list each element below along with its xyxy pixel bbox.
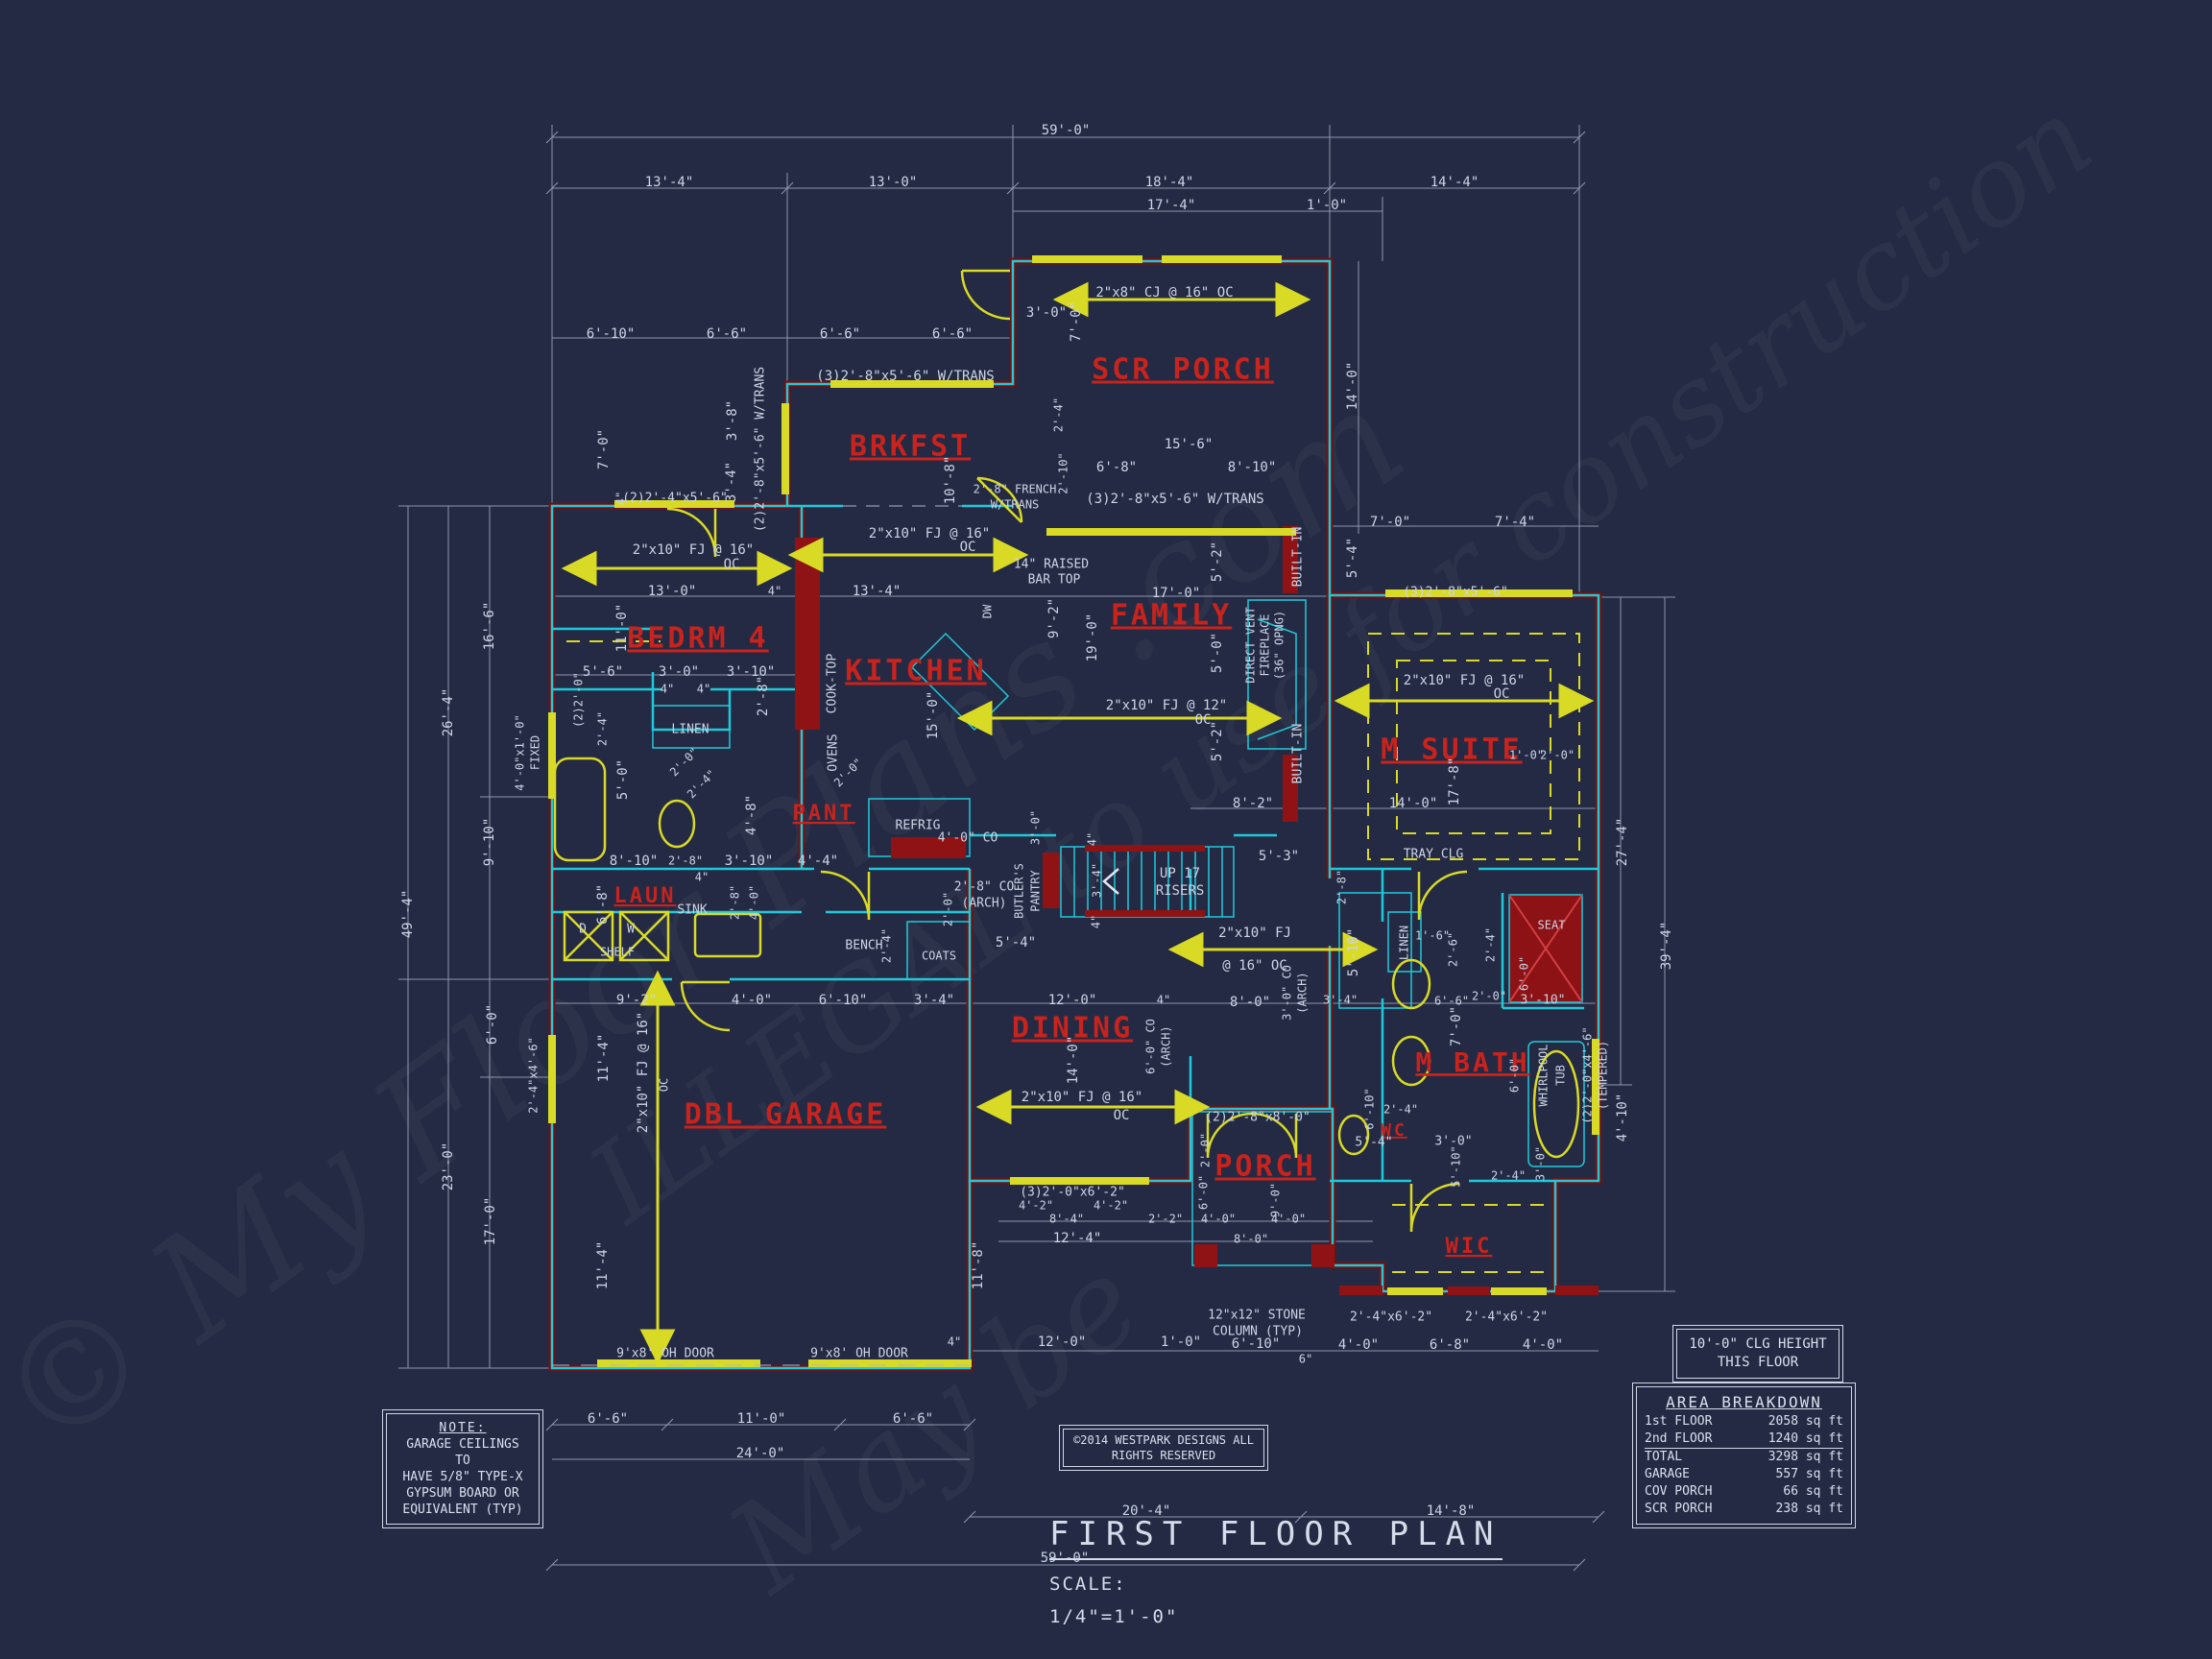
copyright-line: RIGHTS RESERVED xyxy=(1070,1448,1258,1463)
plan-label: SINK xyxy=(677,903,707,918)
plan-label: 17'-8" xyxy=(1447,757,1462,806)
plan-label: 11'-4" xyxy=(595,1241,611,1290)
plan-label: 2'-4" xyxy=(1052,397,1066,432)
area-table-row: TOTAL3298 sq ft xyxy=(1645,1449,1843,1466)
plan-label: 3'-4" xyxy=(914,993,954,1008)
plan-label: 14'-0" xyxy=(1389,796,1438,811)
plan-label: (ARCH) xyxy=(962,897,1007,911)
plan-label: 49'-4" xyxy=(400,890,416,939)
plan-label: 13'-0" xyxy=(648,584,697,599)
room-label: LAUN xyxy=(614,884,677,908)
plan-label: 6'-0" xyxy=(485,1004,500,1045)
plan-label: OC xyxy=(1195,712,1212,728)
room-label: DBL GARAGE xyxy=(685,1098,887,1132)
plan-label: @ 16" OC xyxy=(1222,958,1286,974)
area-row-value: 238 sq ft xyxy=(1776,1501,1843,1518)
plan-label: (2)2'-8"x8'-0" xyxy=(1205,1111,1310,1125)
plan-label: 2'-8" xyxy=(729,885,742,920)
plan-label: 6'-6" xyxy=(707,326,747,342)
area-row-value: 2058 sq ft xyxy=(1768,1413,1843,1431)
plan-label: 6'-6" xyxy=(588,1411,628,1427)
window xyxy=(1032,255,1142,263)
butlers-pantry-counter xyxy=(1043,853,1060,908)
bathtub xyxy=(555,758,605,860)
plan-label: 5'-4" xyxy=(1355,1136,1392,1150)
plan-label: 5'-2" xyxy=(1210,541,1225,582)
area-table-row: 1st FLOOR2058 sq ft xyxy=(1645,1413,1843,1431)
plan-label: 3'-0" CO xyxy=(1281,965,1294,1021)
plan-label: 2"x10" FJ @ 16" xyxy=(633,542,754,558)
plan-label: (2)2'-8"x5'-6" W/TRANS xyxy=(754,367,768,532)
plan-label: 19'-0" xyxy=(1085,613,1100,662)
plan-label: 9'x8' OH DOOR xyxy=(616,1347,714,1361)
plan-label: DW xyxy=(981,604,995,618)
door-arc xyxy=(1419,872,1467,920)
plan-label: 5'-4" xyxy=(996,935,1036,950)
plan-label: 26'-4" xyxy=(441,688,456,737)
plan-label: 14'-4" xyxy=(1431,175,1479,190)
window xyxy=(781,403,789,494)
copyright-box: ©2014 WESTPARK DESIGNS ALL RIGHTS RESERV… xyxy=(1059,1425,1268,1471)
plan-label: 4'-0" xyxy=(732,993,772,1008)
plan-label: OC xyxy=(1494,686,1510,702)
plan-label: 4'-0" xyxy=(1201,1213,1236,1226)
plan-label: (2)2'-4"x5'-6" xyxy=(622,492,728,506)
plan-label: 6'-6" xyxy=(820,326,860,342)
title-block: FIRST FLOOR PLAN SCALE: 1/4"=1'-0" xyxy=(1049,1515,1503,1627)
area-table-row: COV PORCH66 sq ft xyxy=(1645,1483,1843,1501)
plan-label: 7'-0" xyxy=(1370,515,1410,530)
plan-label: 1'-6" xyxy=(1415,929,1450,943)
plan-label: 4" xyxy=(697,683,710,696)
plan-label: OVENS xyxy=(827,733,841,771)
plan-label: 5'-0" xyxy=(615,759,631,800)
plan-label: 6'-10" xyxy=(587,326,636,342)
scale-label: SCALE: xyxy=(1049,1574,1503,1595)
window xyxy=(1162,255,1282,263)
plan-label: 5'-3" xyxy=(1259,849,1299,864)
plan-label: 17'-0" xyxy=(1152,586,1201,601)
plan-label: 24'-0" xyxy=(736,1446,785,1461)
plan-label: 2'-4" xyxy=(1383,1103,1418,1117)
plan-label: 6'-8" xyxy=(595,884,611,925)
plan-label: 6'-6" xyxy=(893,1411,933,1427)
note-line: GARAGE CEILINGS TO xyxy=(397,1436,529,1469)
plan-label: 4" xyxy=(695,871,709,884)
plan-label: 27'-4" xyxy=(1615,818,1630,867)
plan-label: 3'-10" xyxy=(725,854,774,869)
plan-label: D xyxy=(579,923,587,937)
area-row-label: COV PORCH xyxy=(1645,1483,1712,1501)
plan-label: (2)2'-0"x4'-6" xyxy=(1581,1026,1595,1123)
plan-label: 2'-0" xyxy=(942,892,955,926)
plan-label: 4" xyxy=(661,683,674,696)
stair-stringer-top xyxy=(1085,845,1205,852)
plan-label: 59'-0" xyxy=(1042,123,1091,138)
plan-label: 13'-4" xyxy=(645,175,694,190)
plan-label: 12'-0" xyxy=(1038,1334,1087,1350)
plan-label: OC xyxy=(960,540,976,555)
plan-label: SHELF xyxy=(600,946,635,959)
plan-label: 5'-0" xyxy=(1210,633,1225,673)
area-row-value: 557 sq ft xyxy=(1776,1466,1843,1483)
plan-label: 7'-0" xyxy=(1449,1006,1464,1046)
plan-label: 16'-6" xyxy=(482,602,497,651)
plan-label: 2'-8" FRENCH xyxy=(974,483,1057,496)
plan-label: (3)2'-8"x5'-6" W/TRANS xyxy=(1086,492,1263,507)
plan-label: TUB xyxy=(1554,1065,1568,1086)
plan-label: 12"x12" STONE xyxy=(1208,1309,1306,1323)
note-line: EQUIVALENT (TYP) xyxy=(397,1502,529,1518)
plan-label: 2'-8" xyxy=(1335,870,1349,904)
plan-label: 14'-0" xyxy=(1066,1036,1081,1085)
plan-label: 2'-4"x6'-2" xyxy=(1465,1310,1548,1325)
plan-label: 2"x10" FJ @ 12" xyxy=(1106,698,1227,713)
plan-label: 14'-0" xyxy=(1345,362,1360,411)
plan-label: REFRIG xyxy=(896,819,941,833)
plan-label: 4" xyxy=(948,1335,961,1349)
plan-label: 2'-0" xyxy=(667,745,701,779)
plan-label: 6'-10" xyxy=(1363,1088,1377,1129)
ceiling-height-line: 10'-0" CLG HEIGHT xyxy=(1687,1335,1829,1354)
plan-label: SEAT xyxy=(1538,919,1566,932)
plan-label: 2'-0" xyxy=(1472,990,1506,1003)
plan-label: 6'-8" xyxy=(1096,460,1137,475)
plan-label: LINEN xyxy=(1398,926,1411,960)
wall-hatch xyxy=(1339,1286,1382,1295)
plan-label: 12'-0" xyxy=(1048,993,1097,1008)
plan-label: 4'-2" xyxy=(1094,1199,1128,1213)
plan-label: W/TRANS xyxy=(991,498,1040,512)
plan-label: 3'-4" xyxy=(1091,863,1104,898)
plan-label: 7'-0" xyxy=(596,429,612,469)
plan-label: 18'-4" xyxy=(1145,175,1194,190)
plan-label: PANTRY xyxy=(1029,870,1043,912)
room-label: BEDRM 4 xyxy=(627,622,768,656)
plan-label: 8'-0" xyxy=(1234,1233,1268,1246)
plan-label: FIXED xyxy=(529,735,542,770)
plan-label: 5'-4" xyxy=(1345,538,1360,578)
plan-label: RISERS xyxy=(1156,883,1205,899)
area-table-row: SCR PORCH238 sq ft xyxy=(1645,1501,1843,1518)
area-row-label: SCR PORCH xyxy=(1645,1501,1712,1518)
plan-label: 4" xyxy=(1086,832,1099,846)
plan-label: 11'-0" xyxy=(614,604,630,653)
plan-label: OC xyxy=(1114,1108,1130,1123)
stone-column xyxy=(1311,1244,1334,1267)
plan-label: OC xyxy=(658,1078,671,1092)
plan-label: 2"x8" CJ @ 16" OC xyxy=(1095,285,1233,301)
plan-label: 6'-6" xyxy=(932,326,973,342)
plan-label: 15'-6" xyxy=(1165,437,1214,452)
plan-label: 6'-0" xyxy=(1518,956,1531,991)
room-label: PANT xyxy=(793,802,855,826)
note-line: GYPSUM BOARD OR xyxy=(397,1485,529,1502)
room-label: FAMILY xyxy=(1111,599,1232,633)
plan-label: OC xyxy=(724,557,740,572)
copyright-line: ©2014 WESTPARK DESIGNS ALL xyxy=(1070,1432,1258,1448)
plan-label: 6'-10" xyxy=(819,993,868,1008)
plan-label: (2)2'-0" xyxy=(572,672,586,728)
plan-label: (3)2'-8"x5'-6" xyxy=(1403,586,1508,600)
wall-hatch xyxy=(1448,1286,1490,1295)
plan-label: 5'-6" xyxy=(583,664,623,680)
plan-label: (3)2'-0"x6'-2" xyxy=(1020,1186,1125,1200)
plan-label: 8'-10" xyxy=(1228,460,1277,475)
plan-label: 1'-0" xyxy=(1307,198,1347,213)
plan-label: W xyxy=(627,923,635,937)
plan-label: 9'-2" xyxy=(616,993,657,1008)
plan-label: 6'-0" xyxy=(1197,1175,1211,1210)
plan-label: BENCH xyxy=(845,939,882,953)
plan-label: 4'-2" xyxy=(1019,1199,1053,1213)
plan-label: 2'-8" xyxy=(668,854,703,868)
plan-label: BUILT-IN xyxy=(1291,724,1306,784)
note-box: NOTE: GARAGE CEILINGS TO HAVE 5/8" TYPE-… xyxy=(382,1409,543,1528)
plan-label: (3)2'-8"x5'-6" W/TRANS xyxy=(816,369,994,384)
area-row-value: 66 sq ft xyxy=(1783,1483,1843,1501)
plan-label: 1'-0" xyxy=(1161,1334,1201,1350)
plan-label: 4'-8" xyxy=(744,795,759,835)
plan-label: (ARCH) xyxy=(1296,972,1310,1013)
plan-label: 8'-4" xyxy=(1049,1213,1084,1226)
room-label: KITCHEN xyxy=(845,655,986,688)
plan-label: 2'-4" xyxy=(1491,1169,1526,1183)
plan-label: 8'-2" xyxy=(1233,796,1273,811)
plan-label: 5'-10" xyxy=(1346,928,1361,977)
plan-label: 5'-10" xyxy=(1450,1145,1463,1187)
plan-label: COATS xyxy=(922,950,956,963)
plan-label: 3'-0" xyxy=(1026,305,1067,321)
room-label: SCR PORCH xyxy=(1092,353,1274,387)
plan-label: 9'x8' OH DOOR xyxy=(810,1347,908,1361)
plan-label: LINEN xyxy=(671,723,709,737)
stone-column xyxy=(1194,1244,1217,1267)
plan-label: WHIRLPOOL xyxy=(1537,1044,1551,1106)
window xyxy=(548,1035,556,1123)
plan-label: 1'-0" xyxy=(1509,749,1544,762)
plan-label: 2'-4"x6'-2" xyxy=(1350,1310,1432,1325)
plan-label: 11'-8" xyxy=(971,1241,986,1290)
plan-label: 3'-0" xyxy=(1029,810,1043,845)
plan-label: 39'-4" xyxy=(1659,922,1674,971)
plan-label: 5'-2" xyxy=(1210,721,1225,761)
plan-label: 4" xyxy=(1157,994,1170,1007)
plan-label: 2'-10" xyxy=(1057,452,1070,493)
plan-label: 2"x10" FJ @ 16" xyxy=(1022,1090,1142,1105)
plan-label: 7'-4" xyxy=(1495,515,1535,530)
plan-label: TRAY CLG xyxy=(1404,848,1464,862)
area-row-value: 1240 sq ft xyxy=(1768,1431,1843,1448)
plan-label: BAR TOP xyxy=(1028,573,1081,588)
area-table-row: 2nd FLOOR1240 sq ft xyxy=(1645,1431,1843,1449)
area-breakdown-table: AREA BREAKDOWN 1st FLOOR2058 sq ft 2nd F… xyxy=(1632,1382,1856,1528)
plan-label: 4'-10" xyxy=(1615,1094,1630,1142)
plan-label: 2'-8" xyxy=(756,676,771,716)
plan-label: 4" xyxy=(1090,915,1103,928)
plan-label: 4'-0" CO xyxy=(938,831,998,846)
plan-label: 4'-4" xyxy=(798,854,838,869)
window xyxy=(1046,528,1296,536)
area-table-title: AREA BREAKDOWN xyxy=(1645,1393,1843,1411)
plan-label: (36" OPNG) xyxy=(1273,611,1286,680)
plan-label: 4'-0" xyxy=(1338,1337,1379,1353)
plan-label: 2'-4" xyxy=(685,767,718,801)
plan-label: 4" xyxy=(768,585,781,598)
wall-hatch xyxy=(1555,1286,1599,1295)
room-label: WIC xyxy=(1446,1235,1493,1259)
room-label: PORCH xyxy=(1214,1150,1315,1184)
plan-label: 10'-8" xyxy=(943,456,958,505)
plan-label: BUTLER'S xyxy=(1013,863,1026,919)
area-row-label: 1st FLOOR xyxy=(1645,1413,1712,1431)
plan-label: 4'-0" xyxy=(1523,1337,1563,1353)
drawing-title: FIRST FLOOR PLAN xyxy=(1049,1515,1503,1560)
plan-label: COOK-TOP xyxy=(826,654,840,714)
floor-plan-drawing: © My Floor Plans .com ILLEGAL to use for… xyxy=(0,0,2212,1659)
plan-label: BUILT-IN xyxy=(1291,527,1306,588)
plan-label: 6'-8" xyxy=(1430,1337,1470,1353)
plan-label: 2'-2" xyxy=(1148,1213,1183,1226)
plan-label: 2'-4" xyxy=(596,711,610,746)
plan-label: 2'-4" xyxy=(1484,927,1498,962)
plan-label: 9'-2" xyxy=(1046,598,1062,638)
plan-label: 2'-6" xyxy=(1447,932,1460,967)
plan-label: 8'-0" xyxy=(1230,995,1270,1010)
plan-label: 12'-4" xyxy=(1053,1231,1102,1246)
plan-label: DIRECT VENT xyxy=(1244,607,1258,683)
plan-label: 2'-8" CO xyxy=(954,880,1015,895)
plan-label: 3'-0" xyxy=(1534,1146,1548,1181)
plan-label: 6'-0" CO xyxy=(1144,1019,1158,1074)
plan-label: 3'-10" xyxy=(1521,994,1566,1008)
plan-label: 2"x10" FJ @ 16" xyxy=(636,1012,651,1133)
plan-label: 2'-0" xyxy=(1540,749,1575,762)
ceiling-height-box: 10'-0" CLG HEIGHT THIS FLOOR xyxy=(1672,1325,1843,1382)
window-bay xyxy=(1010,1177,1149,1185)
plan-label: (ARCH) xyxy=(1160,1025,1173,1067)
plan-label: 14" RAISED xyxy=(1014,558,1089,572)
plan-label: 3'-4" xyxy=(1323,994,1358,1007)
plan-label: 23'-0" xyxy=(441,1142,456,1191)
plan-label: 11'-4" xyxy=(596,1034,612,1083)
plan-label: 4'-0"x1'-0" xyxy=(514,714,527,790)
plan-labels-layer: SCR PORCHBRKFSTBEDRM 4KITCHENFAMILYM SUI… xyxy=(400,123,1674,1566)
door-arc xyxy=(962,271,1010,319)
area-row-label: TOTAL xyxy=(1645,1449,1682,1466)
plan-label: (TEMPERED) xyxy=(1597,1041,1610,1110)
plan-label: 2'-0" xyxy=(1199,1133,1213,1167)
area-row-label: 2nd FLOOR xyxy=(1645,1431,1712,1448)
plan-label: UP 17 xyxy=(1160,866,1200,881)
plan-label: 8'-10" xyxy=(610,854,659,869)
door-arc xyxy=(1411,1184,1459,1232)
plan-label: 6'-0" xyxy=(1508,1058,1522,1093)
blueprint-canvas: © My Floor Plans .com ILLEGAL to use for… xyxy=(0,0,2212,1659)
plan-label: 15'-0" xyxy=(926,691,941,740)
area-row-value: 3298 sq ft xyxy=(1768,1449,1843,1466)
note-line: HAVE 5/8" TYPE-X xyxy=(397,1469,529,1485)
plan-label: 6'-6" xyxy=(1434,995,1469,1008)
note-heading: NOTE: xyxy=(397,1420,529,1436)
stair-stringer-bottom xyxy=(1085,910,1205,917)
area-row-label: GARAGE xyxy=(1645,1466,1690,1483)
area-table-row: GARAGE557 sq ft xyxy=(1645,1466,1843,1483)
plan-label: 6" xyxy=(1299,1353,1312,1366)
plan-label: 2'-4" xyxy=(880,928,894,963)
plan-label: 13'-0" xyxy=(869,175,918,190)
plan-label: 2'-4"x4'-6" xyxy=(527,1037,541,1113)
plan-label: 9'-10" xyxy=(482,818,497,867)
plan-label: 17'-4" xyxy=(1147,198,1196,213)
plan-label: 17'-0" xyxy=(483,1197,498,1246)
plan-label: 6'-10" xyxy=(1232,1336,1281,1352)
plan-label: 7'-0" xyxy=(1069,301,1084,342)
window xyxy=(1387,1287,1443,1295)
plan-label: FIREPLACE xyxy=(1259,613,1272,676)
window xyxy=(1491,1287,1547,1295)
plan-label: 13'-4" xyxy=(853,584,902,599)
plan-label: 4'-0" xyxy=(1271,1213,1306,1226)
scale-value: 1/4"=1'-0" xyxy=(1049,1606,1503,1627)
plan-label: 3'-0" xyxy=(659,664,699,680)
plan-label: 2"x10" FJ xyxy=(1218,926,1291,941)
plan-label: 3'-8" xyxy=(725,400,740,441)
plan-label: 11'-0" xyxy=(737,1411,786,1427)
plan-label: 4'-0" xyxy=(748,885,761,920)
ceiling-height-line: THIS FLOOR xyxy=(1687,1354,1829,1372)
